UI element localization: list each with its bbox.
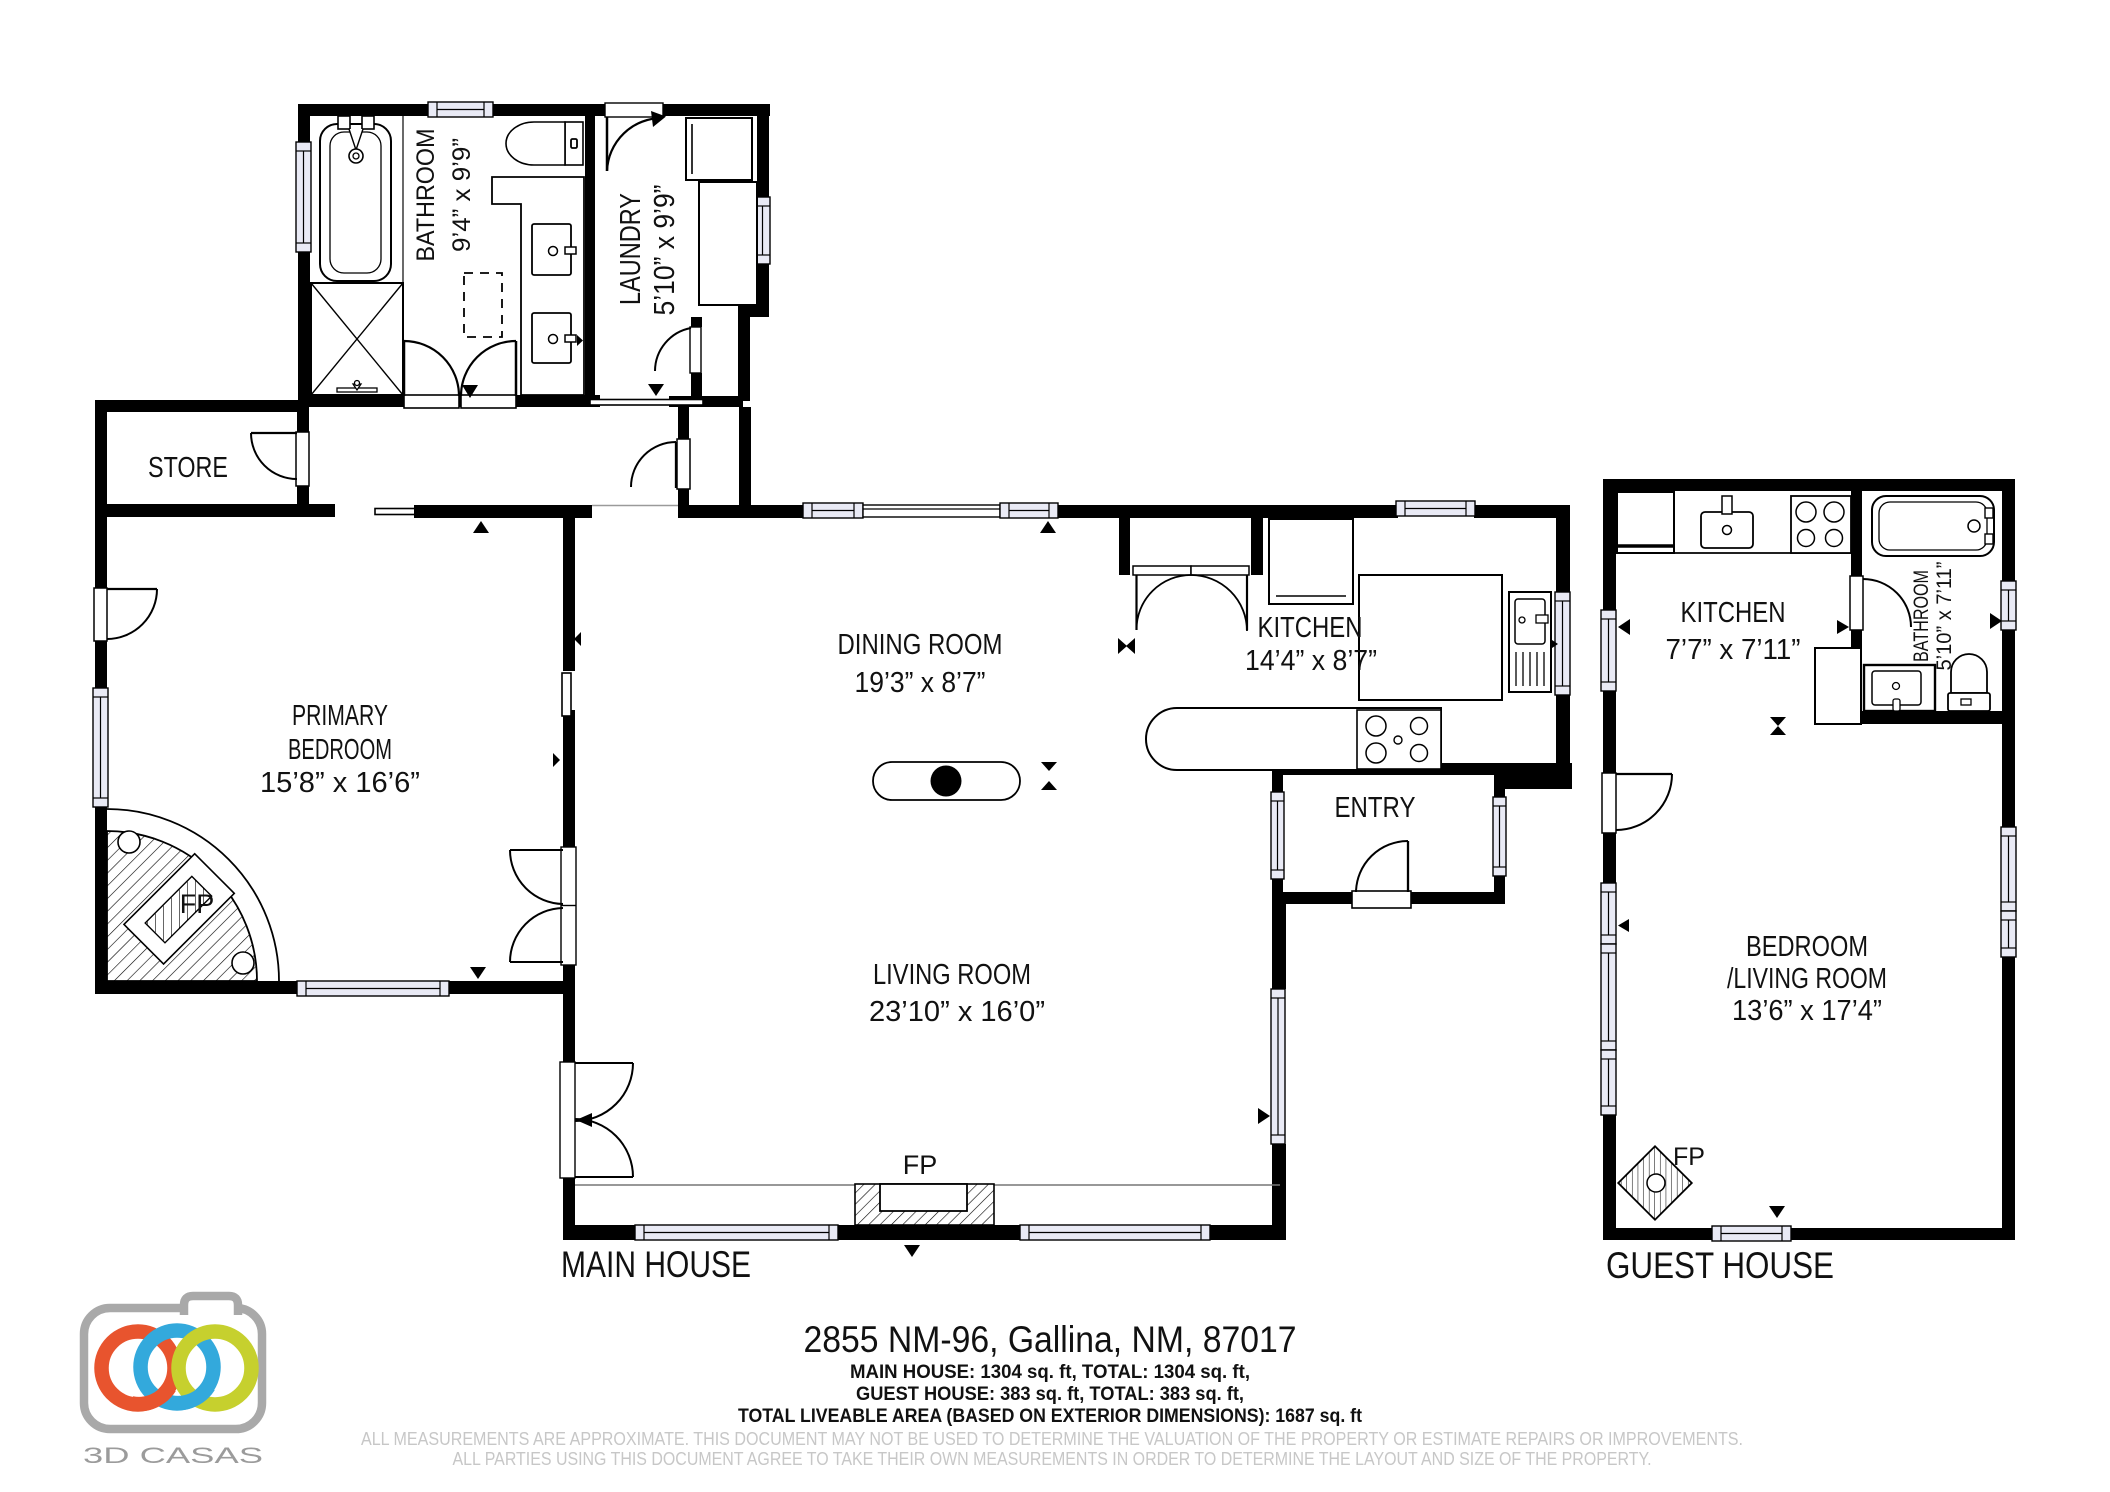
svg-text:TOTAL LIVEABLE AREA (BASED ON: TOTAL LIVEABLE AREA (BASED ON EXTERIOR D…: [738, 1406, 1363, 1427]
svg-text:FP: FP: [180, 889, 215, 919]
svg-text:ALL PARTIES USING THIS DOCUMEN: ALL PARTIES USING THIS DOCUMENT AGREE TO…: [453, 1449, 1652, 1469]
svg-text:ENTRY: ENTRY: [1335, 792, 1416, 824]
svg-text:BATHROOM: BATHROOM: [1910, 570, 1933, 662]
svg-text:BEDROOM: BEDROOM: [1746, 931, 1868, 963]
svg-text:MAIN HOUSE: MAIN HOUSE: [561, 1244, 751, 1285]
svg-text:15’8” x 16’6”: 15’8” x 16’6”: [260, 767, 420, 799]
svg-text:LAUNDRY: LAUNDRY: [615, 193, 647, 305]
svg-text:BATHROOM: BATHROOM: [412, 129, 440, 262]
svg-text:ALL MEASUREMENTS ARE APPROXIMA: ALL MEASUREMENTS ARE APPROXIMATE. THIS D…: [361, 1429, 1743, 1449]
svg-text:PRIMARY: PRIMARY: [292, 700, 388, 732]
svg-text:23’10” x 16’0”: 23’10” x 16’0”: [869, 996, 1045, 1028]
svg-text:DINING ROOM: DINING ROOM: [838, 629, 1003, 661]
svg-text:GUEST HOUSE: 383 sq. ft, TOTAL: GUEST HOUSE: 383 sq. ft, TOTAL: 383 sq. …: [856, 1384, 1244, 1405]
svg-text:STORE: STORE: [148, 452, 228, 484]
svg-text:2855 NM-96, Gallina, NM, 87017: 2855 NM-96, Gallina, NM, 87017: [804, 1319, 1297, 1360]
svg-text:MAIN HOUSE: 1304 sq. ft, TOTAL: MAIN HOUSE: 1304 sq. ft, TOTAL: 1304 sq.…: [850, 1362, 1250, 1383]
svg-text:7’7” x 7’11”: 7’7” x 7’11”: [1666, 634, 1801, 666]
svg-text:5’10” x 7’11”: 5’10” x 7’11”: [1933, 562, 1956, 671]
svg-text:19’3” x 8’7”: 19’3” x 8’7”: [855, 667, 986, 699]
svg-text:9’4” x 9’9”: 9’4” x 9’9”: [448, 138, 476, 252]
svg-text:LIVING ROOM: LIVING ROOM: [873, 959, 1031, 991]
svg-text:3D CASAS: 3D CASAS: [83, 1443, 263, 1468]
svg-text:FP: FP: [1673, 1143, 1705, 1171]
svg-text:BEDROOM: BEDROOM: [288, 734, 392, 766]
svg-text:KITCHEN: KITCHEN: [1258, 612, 1363, 644]
svg-text:5’10” x 9’9”: 5’10” x 9’9”: [649, 185, 681, 316]
svg-text:13’6” x 17’4”: 13’6” x 17’4”: [1732, 995, 1882, 1027]
svg-text:KITCHEN: KITCHEN: [1681, 597, 1786, 629]
svg-text:FP: FP: [903, 1150, 938, 1180]
svg-text:GUEST HOUSE: GUEST HOUSE: [1606, 1245, 1834, 1286]
svg-text:/LIVING ROOM: /LIVING ROOM: [1727, 963, 1887, 995]
svg-text:14’4” x 8’7”: 14’4” x 8’7”: [1245, 645, 1377, 677]
